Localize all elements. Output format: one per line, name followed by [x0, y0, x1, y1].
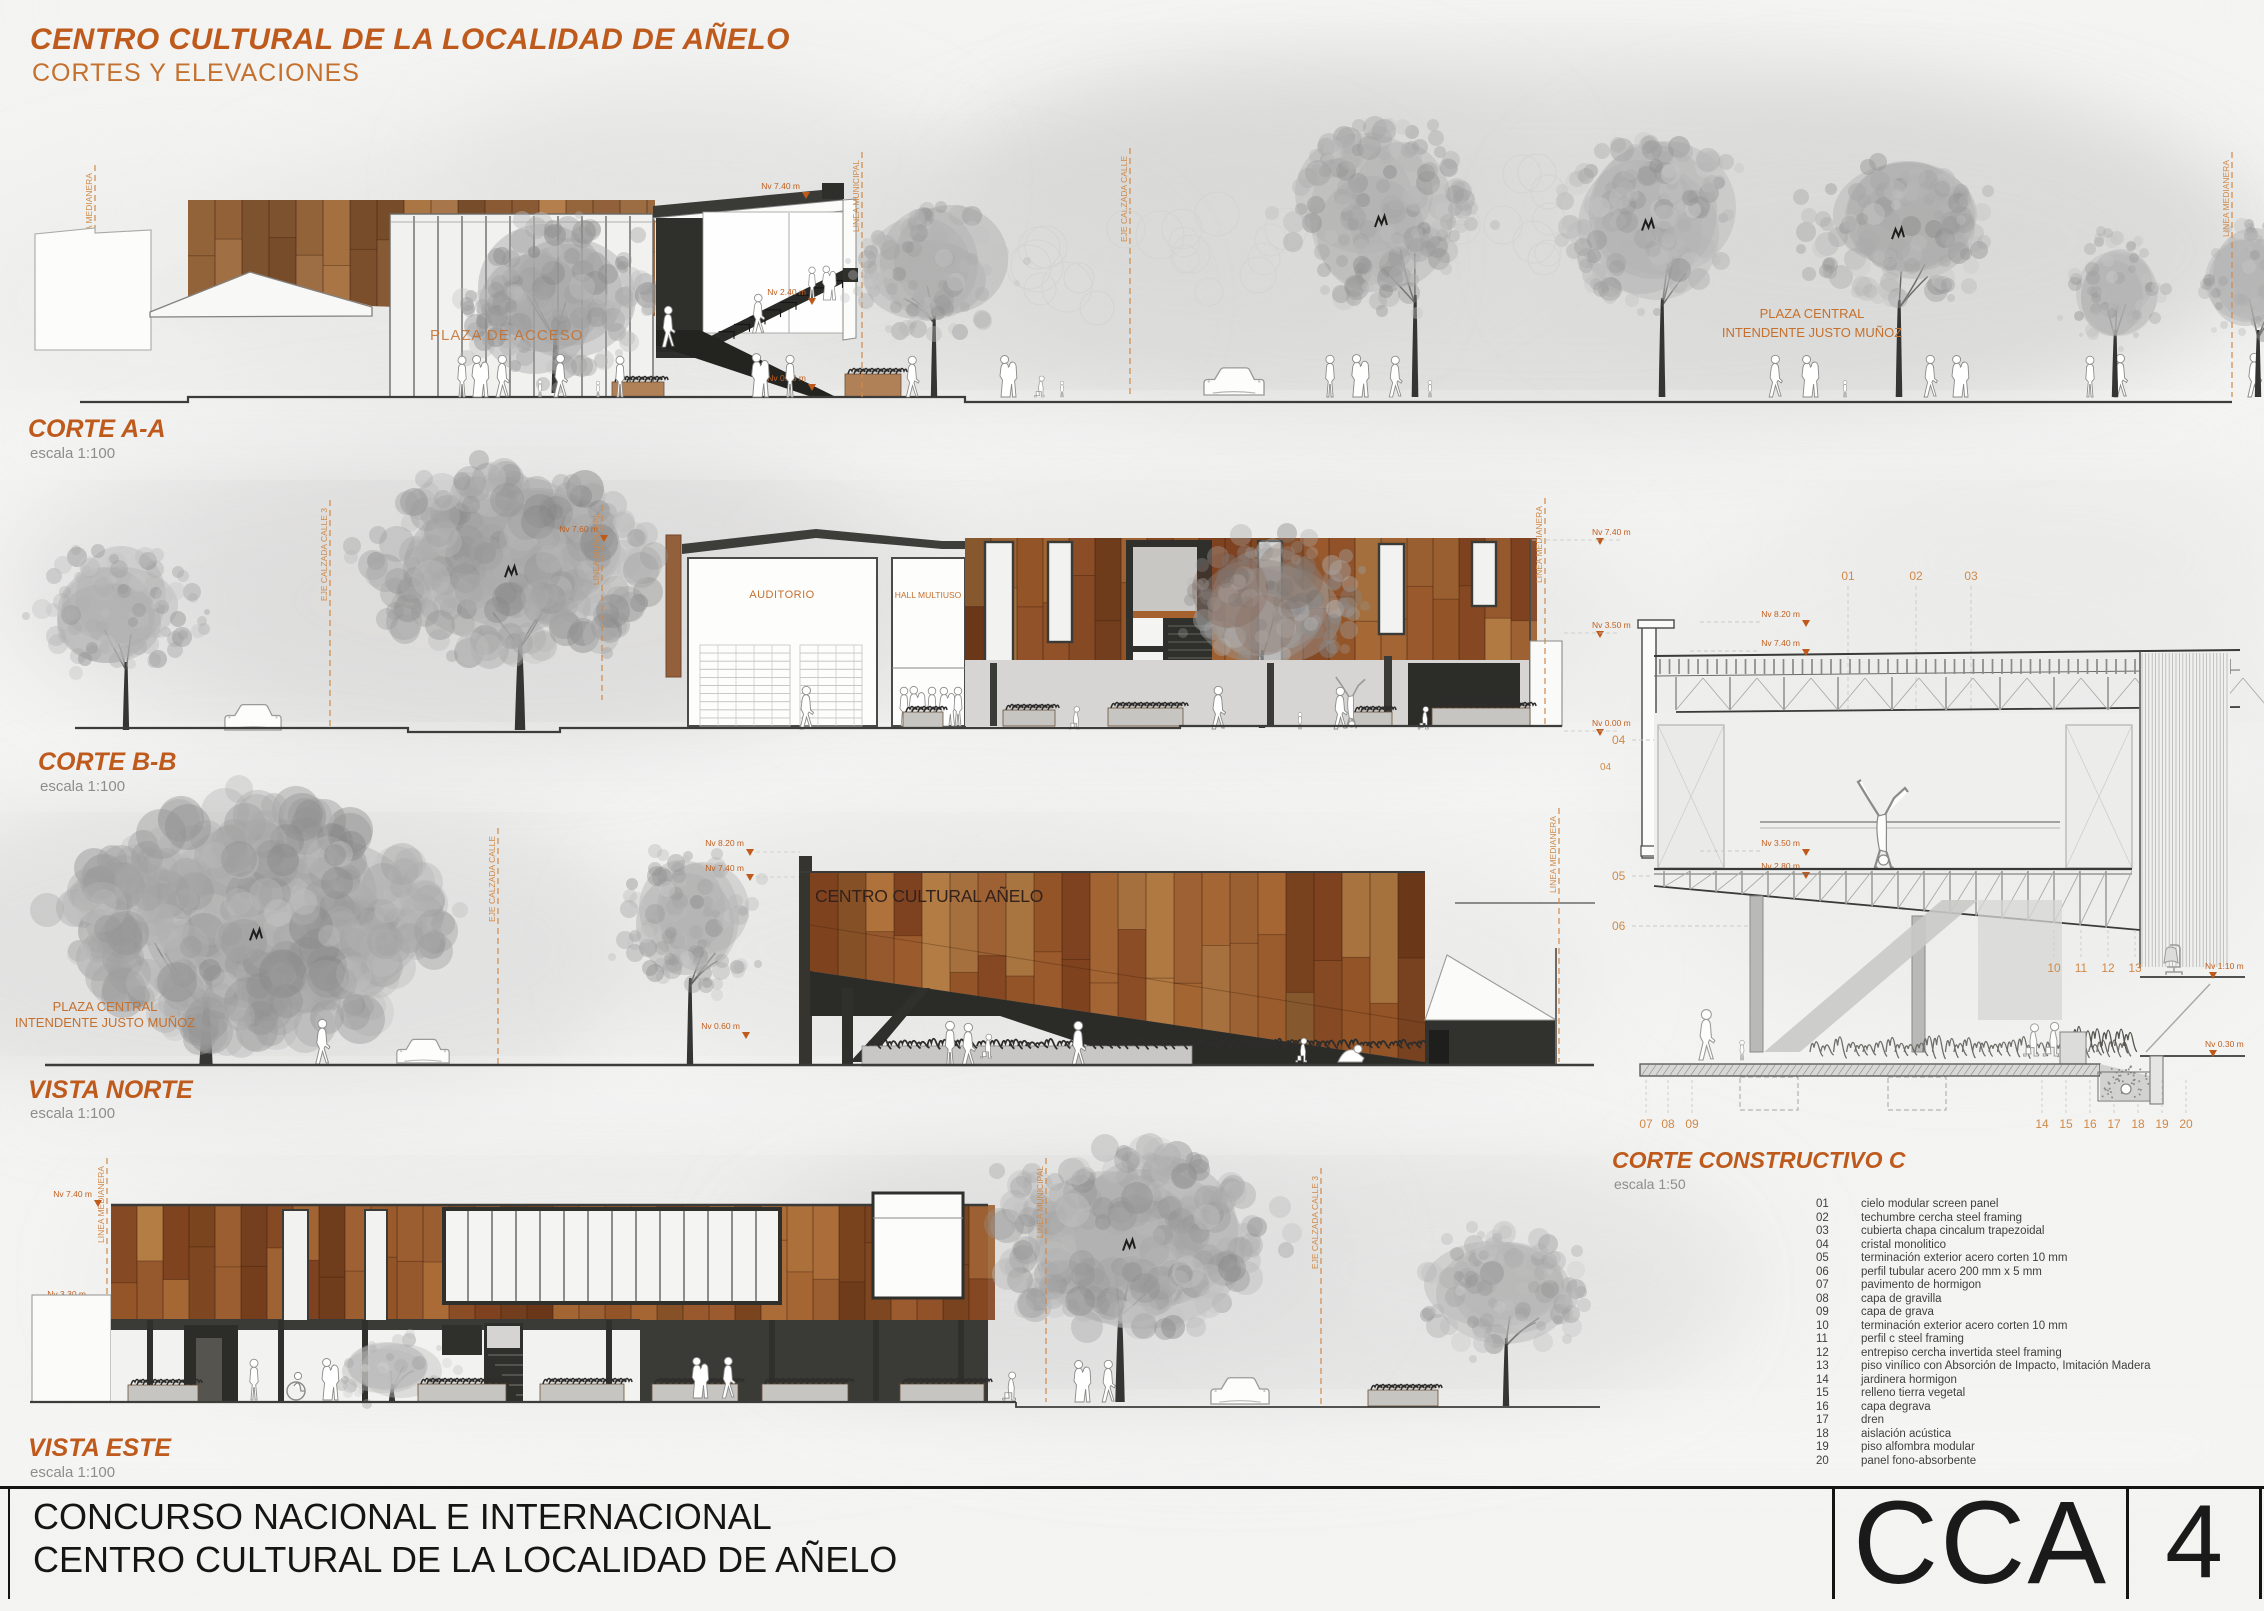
svg-text:HALL MULTIUSO: HALL MULTIUSO [895, 590, 962, 600]
svg-text:EJE CALZADA CALLE 3: EJE CALZADA CALLE 3 [319, 508, 329, 601]
svg-text:03: 03 [1964, 569, 1978, 583]
svg-text:escala 1:100: escala 1:100 [30, 445, 115, 462]
svg-text:Nv 0.00 m: Nv 0.00 m [1592, 718, 1631, 728]
svg-text:CORTE CONSTRUCTIVO C: CORTE CONSTRUCTIVO C [1612, 1147, 1906, 1173]
svg-text:INTENDENTE JUSTO MUÑOZ: INTENDENTE JUSTO MUÑOZ [1722, 325, 1902, 340]
svg-text:10: 10 [2047, 961, 2061, 975]
svg-text:Nv 7.40 m: Nv 7.40 m [1761, 638, 1800, 648]
svg-text:14: 14 [2035, 1117, 2049, 1131]
svg-text:VISTA NORTE: VISTA NORTE [28, 1076, 194, 1104]
svg-text:INTENDENTE JUSTO MUÑOZ: INTENDENTE JUSTO MUÑOZ [15, 1015, 195, 1030]
svg-text:CORTE B-B: CORTE B-B [38, 748, 176, 776]
svg-text:Nv 8.20 m: Nv 8.20 m [705, 838, 744, 848]
svg-text:EJE CALZADA CALLE 3: EJE CALZADA CALLE 3 [1310, 1176, 1320, 1269]
svg-text:06: 06 [1612, 919, 1626, 933]
svg-text:Nv 3.50 m: Nv 3.50 m [1592, 620, 1631, 630]
svg-text:EJE CALZADA CALLE: EJE CALZADA CALLE [487, 836, 497, 922]
svg-text:11: 11 [2075, 961, 2088, 975]
svg-text:04: 04 [1612, 733, 1626, 747]
svg-text:escala 1:100: escala 1:100 [30, 1464, 115, 1481]
svg-text:Nv 7.40 m: Nv 7.40 m [1592, 527, 1631, 537]
svg-text:01: 01 [1841, 569, 1855, 583]
svg-text:Nv 7.40 m: Nv 7.40 m [705, 863, 744, 873]
svg-text:02: 02 [1909, 569, 1923, 583]
svg-text:LINEA MUNICIPAL: LINEA MUNICIPAL [851, 160, 861, 232]
svg-text:Nv 2.40 m: Nv 2.40 m [767, 287, 806, 297]
svg-text:05: 05 [1612, 869, 1626, 883]
svg-text:04: 04 [1600, 762, 1612, 773]
svg-text:15: 15 [2059, 1117, 2073, 1131]
svg-text:07: 07 [1639, 1117, 1653, 1131]
svg-text:17: 17 [2107, 1117, 2121, 1131]
svg-text:LINEA MEDIANERA: LINEA MEDIANERA [1534, 506, 1544, 583]
svg-text:19: 19 [2155, 1117, 2169, 1131]
svg-text:08: 08 [1661, 1117, 1675, 1131]
svg-text:CORTE A-A: CORTE A-A [28, 415, 166, 443]
svg-text:LINEA MUNICIPAL: LINEA MUNICIPAL [1035, 1166, 1045, 1238]
svg-text:LINEA MEDIANERA: LINEA MEDIANERA [1548, 816, 1558, 893]
svg-text:Nv 7.60 m: Nv 7.60 m [559, 524, 598, 534]
svg-text:escala 1:100: escala 1:100 [40, 778, 125, 795]
svg-text:Nv 0.30 m: Nv 0.30 m [2205, 1039, 2244, 1049]
svg-text:12: 12 [2101, 961, 2115, 975]
svg-text:20: 20 [2179, 1117, 2193, 1131]
svg-text:VISTA ESTE: VISTA ESTE [28, 1434, 172, 1462]
svg-text:escala 1:100: escala 1:100 [30, 1105, 115, 1122]
svg-text:Nv 7.40 m: Nv 7.40 m [53, 1189, 92, 1199]
svg-text:PLAZA DE ACCESO: PLAZA DE ACCESO [430, 327, 583, 344]
svg-text:PLAZA CENTRAL: PLAZA CENTRAL [1760, 306, 1865, 321]
svg-text:PLAZA CENTRAL: PLAZA CENTRAL [53, 999, 158, 1014]
svg-text:Nv 7.40 m: Nv 7.40 m [761, 181, 800, 191]
svg-text:16: 16 [2083, 1117, 2097, 1131]
svg-text:09: 09 [1685, 1117, 1699, 1131]
svg-text:Nv 1.10 m: Nv 1.10 m [2205, 961, 2244, 971]
svg-text:Nv 3.50 m: Nv 3.50 m [1761, 838, 1800, 848]
svg-text:LINEA MEDIANERA: LINEA MEDIANERA [2221, 160, 2231, 237]
svg-text:Nv 0.60 m: Nv 0.60 m [701, 1021, 740, 1031]
svg-text:18: 18 [2131, 1117, 2145, 1131]
svg-text:escala 1:50: escala 1:50 [1614, 1176, 1686, 1192]
svg-text:CENTRO CULTURAL AÑELO: CENTRO CULTURAL AÑELO [815, 885, 1043, 906]
svg-text:Nv 8.20 m: Nv 8.20 m [1761, 609, 1800, 619]
svg-text:AUDITORIO: AUDITORIO [749, 589, 814, 601]
svg-text:13: 13 [2128, 961, 2142, 975]
svg-text:EJE CALZADA CALLE: EJE CALZADA CALLE [1119, 156, 1129, 242]
